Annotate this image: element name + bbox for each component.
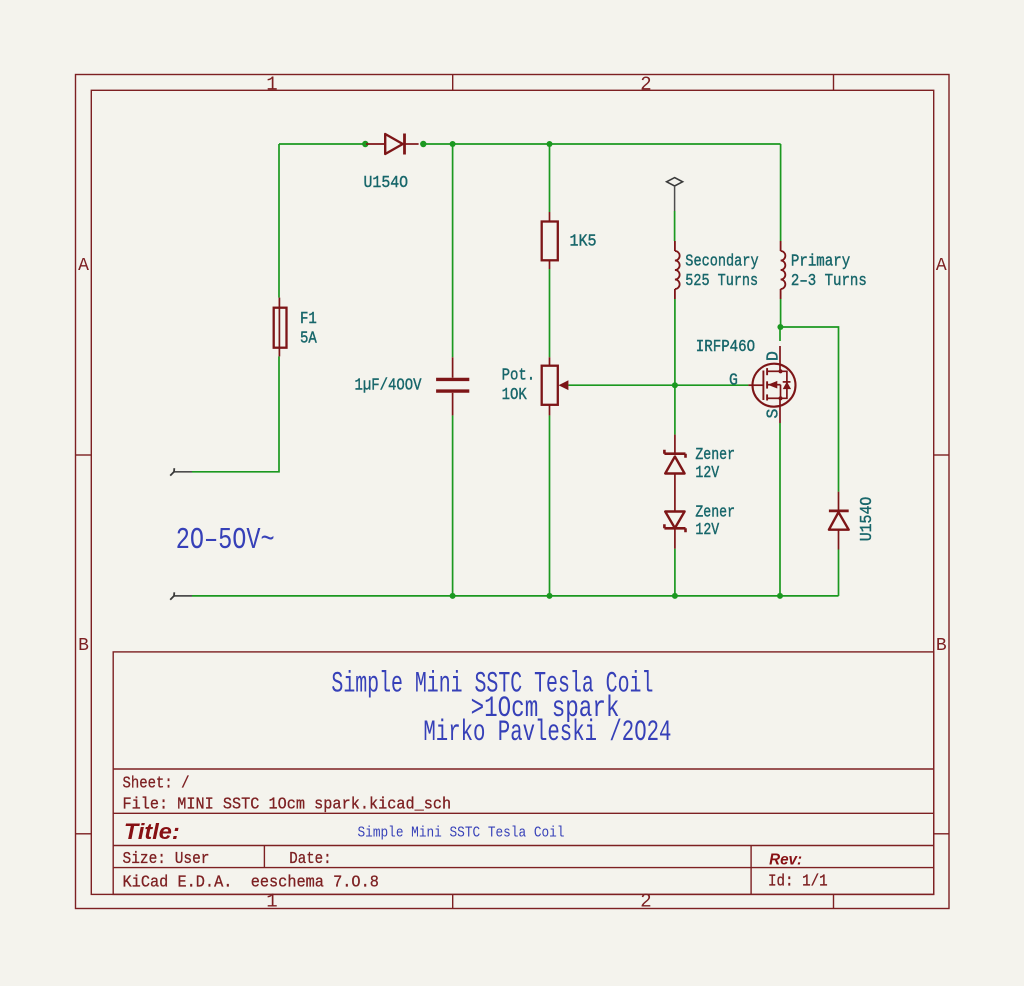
svg-text:1: 1 — [266, 74, 277, 96]
svg-text:2O–5OV~: 2O–5OV~ — [176, 523, 275, 558]
svg-text:S: S — [764, 408, 783, 418]
svg-text:A: A — [936, 256, 947, 276]
svg-text:Id: 1/1: Id: 1/1 — [768, 873, 828, 892]
svg-text:F1: F1 — [300, 309, 317, 328]
svg-text:1OK: 1OK — [502, 385, 527, 404]
svg-text:Pot.: Pot. — [502, 366, 536, 385]
svg-text:B: B — [78, 636, 89, 656]
svg-text:1µF/4OOV: 1µF/4OOV — [355, 376, 422, 395]
svg-text:Rev:: Rev: — [769, 852, 802, 869]
svg-text:D: D — [764, 351, 783, 361]
svg-text:12V: 12V — [695, 463, 719, 482]
svg-text:Zener: Zener — [695, 445, 735, 464]
svg-text:5A: 5A — [300, 329, 317, 348]
svg-text:Secondary: Secondary — [685, 252, 758, 271]
svg-text:A: A — [78, 256, 89, 276]
svg-text:Primary: Primary — [791, 252, 850, 271]
svg-text:12V: 12V — [695, 520, 719, 539]
svg-text:IRFP46O: IRFP46O — [696, 337, 755, 356]
svg-text:Size: User: Size: User — [123, 850, 210, 869]
svg-text:File: MINI SSTC 1Ocm spark.kic: File: MINI SSTC 1Ocm spark.kicad_sch — [123, 796, 452, 815]
svg-text:Zener: Zener — [695, 503, 735, 522]
svg-text:Simple Mini SSTC Tesla Coil: Simple Mini SSTC Tesla Coil — [358, 825, 565, 842]
svg-text:U154O: U154O — [364, 173, 409, 192]
svg-text:525 Turns: 525 Turns — [685, 271, 758, 290]
svg-text:Sheet: /: Sheet: / — [123, 775, 190, 794]
svg-text:Mirko Pavleski /2O24: Mirko Pavleski /2O24 — [423, 716, 671, 750]
svg-text:Title:: Title: — [124, 819, 180, 844]
svg-text:2–3 Turns: 2–3 Turns — [791, 271, 867, 290]
svg-text:2: 2 — [640, 74, 651, 96]
svg-text:U154O: U154O — [857, 497, 876, 542]
svg-text:B: B — [936, 636, 947, 656]
svg-text:1K5: 1K5 — [570, 232, 597, 251]
svg-text:KiCad E.D.A. eeschema 7.O.8: KiCad E.D.A. eeschema 7.O.8 — [123, 874, 379, 893]
svg-text:G: G — [729, 370, 738, 389]
svg-text:Date:: Date: — [289, 850, 331, 869]
